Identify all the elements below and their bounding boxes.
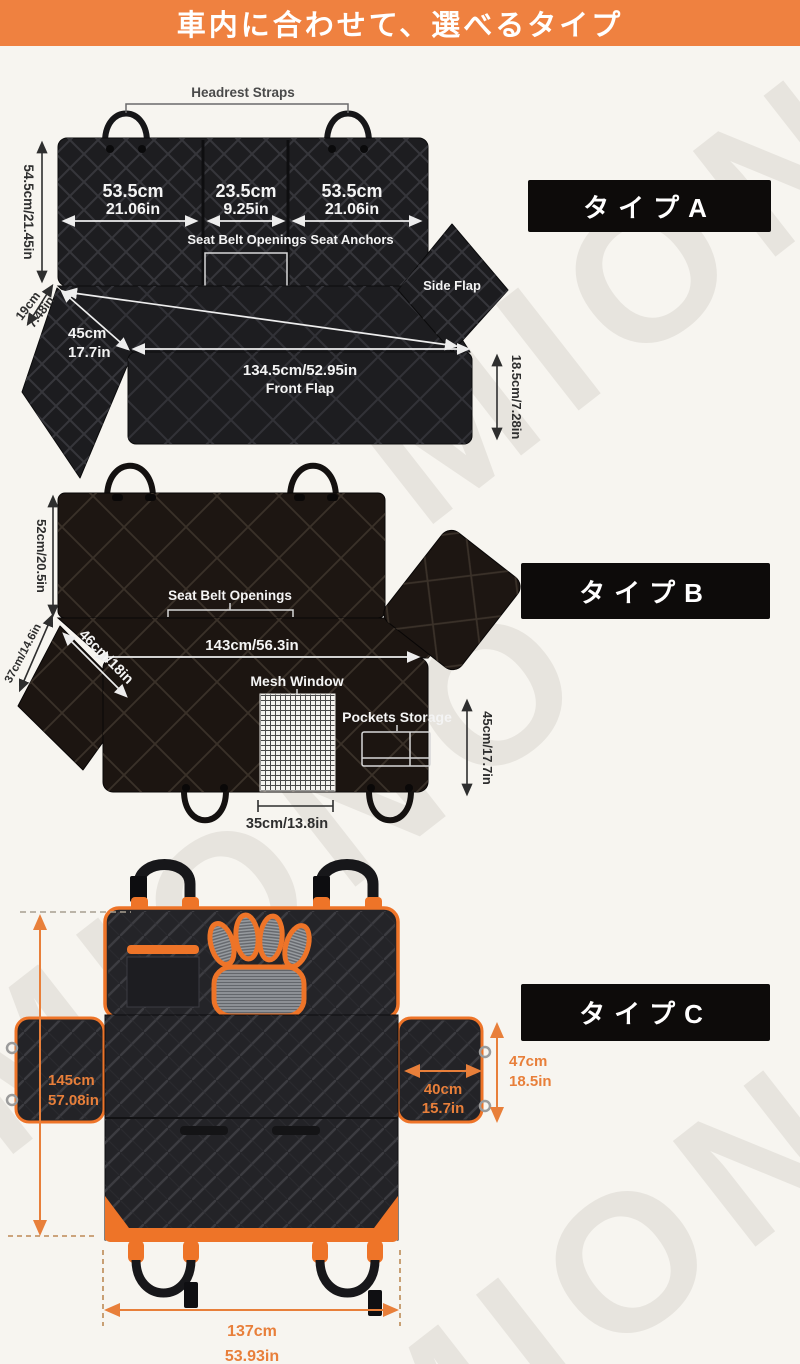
grommet — [182, 784, 190, 792]
strap-tab — [128, 1240, 144, 1263]
dim-left-cm: 53.5cm — [102, 181, 163, 201]
dim-right-cm: 53.5cm — [321, 181, 382, 201]
svg-text:45cm/17.7in: 45cm/17.7in — [480, 711, 495, 785]
strap-buckle — [184, 1282, 198, 1308]
mesh-width-dim: 35cm/13.8in — [246, 816, 328, 832]
diagram-canvas: Headrest Straps 53.5cm 21.06in 23.5cm 9.… — [0, 0, 800, 1364]
strap-tab — [367, 1240, 383, 1263]
dim-right-in: 21.06in — [325, 201, 379, 218]
wing-width-in: 15.7in — [422, 1100, 465, 1117]
height-dim: 52cm/20.5in — [34, 519, 49, 593]
grommet — [145, 494, 156, 501]
grommet — [327, 494, 338, 501]
strap-tab — [312, 1240, 328, 1263]
svg-text:18.5cm/7.28in: 18.5cm/7.28in — [509, 355, 524, 440]
grommet — [294, 494, 305, 501]
grommet — [405, 784, 413, 792]
belt-slot — [272, 1126, 320, 1135]
type-c-diagram: 145cm 57.08in 40cm 15.7in 47cm 18.5in 13… — [7, 865, 552, 1364]
grommet — [112, 494, 123, 501]
anchor-loop — [184, 791, 226, 820]
dim-left-in: 21.06in — [106, 201, 160, 218]
product-infographic: 車内に合わせて、選べるタイプ MIONO MIONO MIONO タイプA タイ… — [0, 0, 800, 1364]
front-flap-label: Front Flap — [266, 380, 334, 396]
grommet — [360, 145, 368, 153]
grommet — [367, 784, 375, 792]
grommet — [138, 145, 146, 153]
height-dim: 54.5cm/21.45in — [21, 164, 36, 259]
bottom-trim — [105, 1228, 398, 1242]
svg-text:52cm/20.5in: 52cm/20.5in — [34, 519, 49, 593]
quilt-texture — [105, 1015, 398, 1240]
headrest-straps-label: Headrest Straps — [191, 85, 295, 100]
paw-toe — [234, 914, 260, 960]
wing-height-cm: 47cm — [509, 1053, 547, 1070]
side-flap-label: Side Flap — [423, 278, 481, 293]
length-dim-in: 57.08in — [48, 1092, 99, 1109]
bottom-strap — [136, 1260, 191, 1293]
svg-text:54.5cm/21.45in: 54.5cm/21.45in — [21, 164, 36, 259]
storage-pocket — [127, 957, 199, 1007]
grommet — [328, 145, 336, 153]
anchor-loop — [369, 791, 411, 820]
drop-dim: 18.5cm/7.28in — [509, 355, 524, 440]
mesh-window-label: Mesh Window — [250, 673, 343, 689]
seat-belt-openings-label: Seat Belt Openings — [168, 588, 292, 603]
belt-slot — [180, 1126, 228, 1135]
headrest-bracket — [126, 104, 348, 113]
pockets-storage-label: Pockets Storage — [342, 709, 452, 725]
seat-anchors-label: Seat Anchors — [310, 232, 393, 247]
dim-center-in: 9.25in — [223, 201, 268, 218]
bottom-strap — [320, 1260, 375, 1293]
front-width-dim: 134.5cm/52.95in — [243, 362, 357, 379]
dim-center-cm: 23.5cm — [215, 181, 276, 201]
wing-height-in: 18.5in — [509, 1073, 552, 1090]
grommet — [220, 784, 228, 792]
mesh-window — [260, 694, 335, 791]
type-a-diagram: Headrest Straps 53.5cm 21.06in 23.5cm 9.… — [13, 85, 524, 478]
bottom-width-cm: 137cm — [227, 1323, 277, 1340]
bench-height-dim: 45cm/17.7in — [480, 711, 495, 785]
width-dim: 143cm/56.3in — [205, 637, 298, 654]
pocket-trim — [127, 945, 199, 954]
bottom-width-in: 53.93in — [225, 1348, 279, 1364]
depth-dim-cm: 45cm — [68, 325, 106, 342]
seat-belt-openings-label: Seat Belt Openings — [187, 232, 306, 247]
length-dim-cm: 145cm — [48, 1072, 95, 1089]
type-b-diagram: Seat Belt Openings Mesh Window Pockets — [3, 466, 525, 832]
paw-mesh-window — [206, 914, 314, 1016]
paw-pad — [214, 967, 304, 1016]
wing-width-cm: 40cm — [424, 1081, 462, 1098]
depth-dim-in: 17.7in — [68, 344, 111, 361]
strap-buckle — [368, 1290, 382, 1316]
strap-tab — [183, 1240, 199, 1263]
grommet — [106, 145, 114, 153]
